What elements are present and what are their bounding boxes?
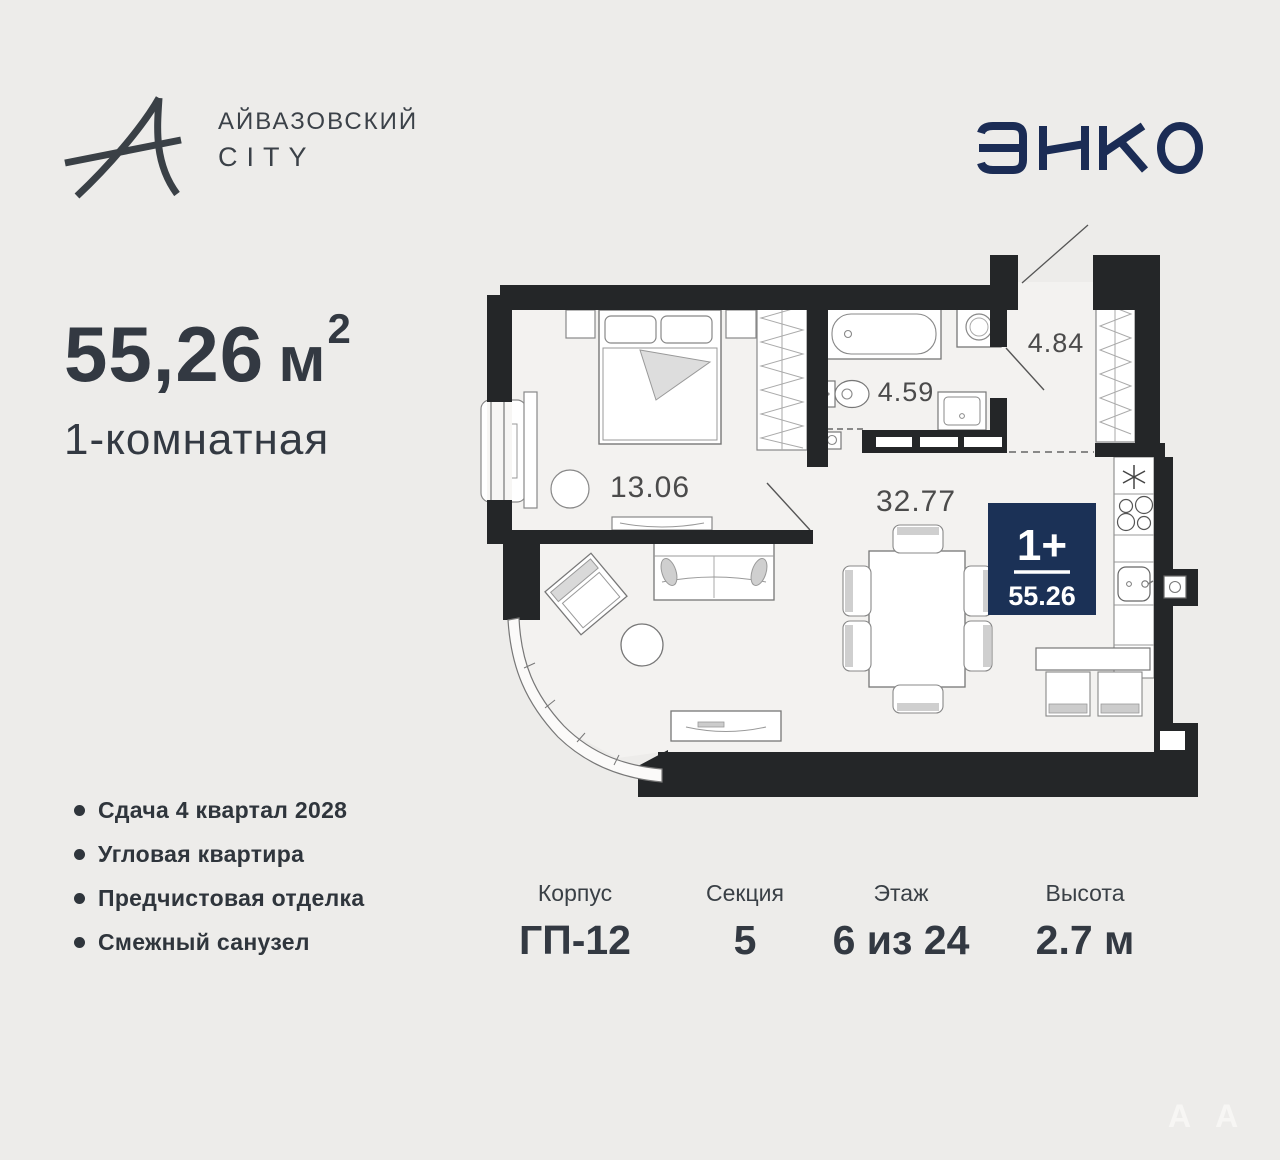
spec-value: 2.7 м (1036, 917, 1135, 964)
bathroom-area-label: 4.59 (878, 377, 935, 407)
enko-logo-icon (977, 121, 1203, 175)
feature-item: Угловая квартира (64, 835, 364, 879)
feature-item: Предчистовая отделка (64, 879, 364, 923)
brand-name: АЙВАЗОВСКИЙ (218, 110, 418, 134)
brand-a-icon (62, 88, 184, 200)
bedroom-area-label: 13.06 (610, 471, 690, 504)
living-kitchen-area-label: 32.77 (876, 485, 956, 518)
vent-box-icon (1164, 576, 1186, 598)
spec-height: Высота 2.7 м (1036, 880, 1135, 964)
spec-value: 5 (706, 917, 784, 964)
brand-logo: АЙВАЗОВСКИЙ CITY (62, 88, 392, 200)
watermark: А А (1168, 1098, 1238, 1135)
badge-area-label: 55.26 (1008, 581, 1076, 611)
wardrobe-icon (757, 302, 807, 450)
floor-plan: 13.06 32.77 4.59 4.84 1+ 55.26 (480, 215, 1200, 797)
dresser-icon (612, 517, 712, 530)
spec-value: 6 из 24 (833, 917, 970, 964)
toilet-icon (822, 381, 869, 408)
spec-floor: Этаж 6 из 24 (833, 880, 970, 964)
tv-stand-icon (671, 711, 781, 741)
bullet-icon (74, 849, 85, 860)
bathtub-icon (827, 309, 941, 359)
spec-value: ГП-12 (519, 917, 631, 964)
feature-item: Смежный санузел (64, 923, 364, 967)
area-unit: м (278, 323, 325, 395)
kitchen-counter-icon (1114, 457, 1154, 678)
brand-name-2: CITY (218, 144, 418, 171)
bed-icon (599, 310, 721, 444)
spec-label: Секция (706, 880, 784, 907)
feature-list: Сдача 4 квартал 2028 Угловая квартира Пр… (64, 791, 364, 967)
watermark-glyph: А (1168, 1098, 1191, 1135)
bullet-icon (74, 893, 85, 904)
spec-label: Корпус (519, 880, 631, 907)
feature-item: Сдача 4 квартал 2028 (64, 791, 364, 835)
bullet-icon (74, 805, 85, 816)
spec-building: Корпус ГП-12 (519, 880, 631, 964)
kitchen-sink-icon (1118, 567, 1153, 601)
apartment-type-label: 1-комнатная (64, 415, 329, 465)
watermark-glyph: А (1215, 1098, 1238, 1135)
bedroom-window-icon (487, 402, 512, 500)
bullet-icon (74, 937, 85, 948)
hallway-area-label: 4.84 (1028, 328, 1085, 358)
spec-label: Высота (1036, 880, 1135, 907)
pouf-icon (551, 470, 589, 508)
entry-door-swing (1022, 225, 1088, 283)
coffee-table-icon (621, 624, 663, 666)
spec-section: Секция 5 (706, 880, 784, 964)
bathroom-sink-icon (938, 392, 986, 430)
developer-logo: ЭНКО (977, 121, 1203, 180)
sofa-icon (654, 543, 774, 600)
spec-label: Этаж (833, 880, 970, 907)
badge-layout-label: 1+ (1017, 521, 1067, 570)
layout-badge: 1+ 55.26 (988, 503, 1096, 615)
apartment-area-title: 55,26м2 (64, 308, 351, 393)
area-superscript: 2 (328, 305, 351, 352)
area-value: 55,26 (64, 310, 264, 398)
